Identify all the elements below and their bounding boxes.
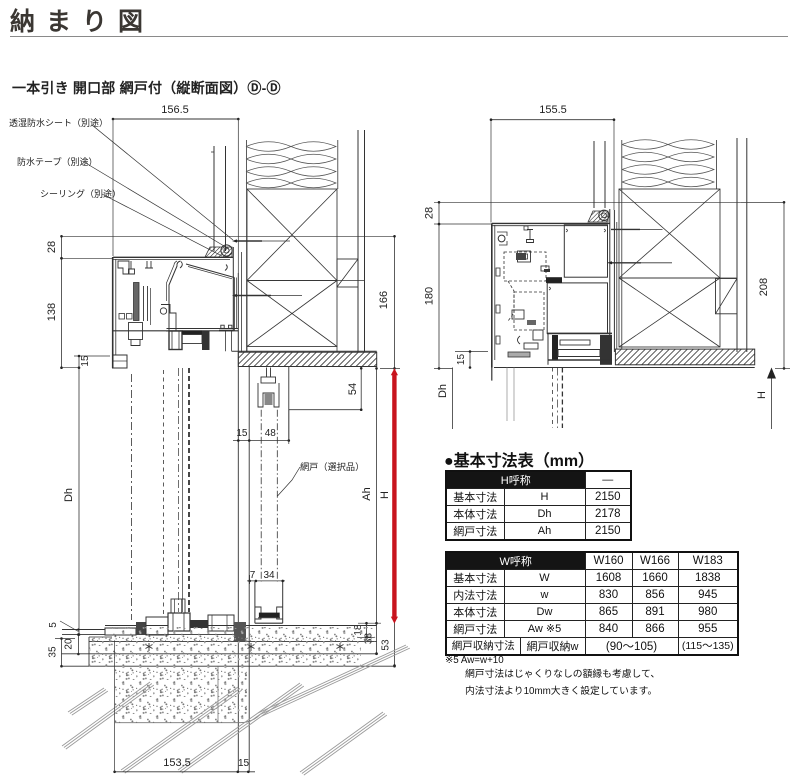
svg-text:15: 15 bbox=[238, 758, 250, 769]
svg-text:166: 166 bbox=[378, 291, 390, 309]
svg-text:180: 180 bbox=[424, 287, 436, 305]
svg-text:34: 34 bbox=[263, 570, 275, 581]
svg-text:Dh: Dh bbox=[63, 488, 75, 502]
svg-text:28: 28 bbox=[424, 207, 436, 219]
svg-text:H: H bbox=[756, 391, 768, 399]
svg-text:5: 5 bbox=[48, 622, 59, 628]
svg-text:208: 208 bbox=[758, 278, 770, 296]
svg-text:20: 20 bbox=[64, 638, 75, 650]
svg-text:54: 54 bbox=[347, 383, 359, 395]
svg-text:H: H bbox=[379, 491, 391, 499]
svg-text:53: 53 bbox=[381, 639, 392, 651]
svg-text:138: 138 bbox=[46, 303, 58, 321]
svg-text:15: 15 bbox=[236, 428, 248, 439]
svg-text:Dh: Dh bbox=[437, 384, 449, 398]
svg-text:35: 35 bbox=[48, 646, 59, 658]
svg-text:48: 48 bbox=[265, 428, 277, 439]
svg-text:156.5: 156.5 bbox=[161, 104, 189, 116]
svg-text:7: 7 bbox=[250, 570, 256, 581]
svg-text:Ah: Ah bbox=[361, 487, 373, 500]
svg-text:15: 15 bbox=[456, 354, 467, 366]
svg-text:防水テープ（別途）: 防水テープ（別途） bbox=[17, 156, 97, 167]
svg-text:153.5: 153.5 bbox=[163, 757, 191, 769]
svg-text:28: 28 bbox=[46, 241, 58, 253]
svg-text:155.5: 155.5 bbox=[539, 104, 567, 116]
svg-text:15: 15 bbox=[80, 355, 91, 367]
svg-text:網戸（選択品）: 網戸（選択品） bbox=[300, 461, 364, 472]
